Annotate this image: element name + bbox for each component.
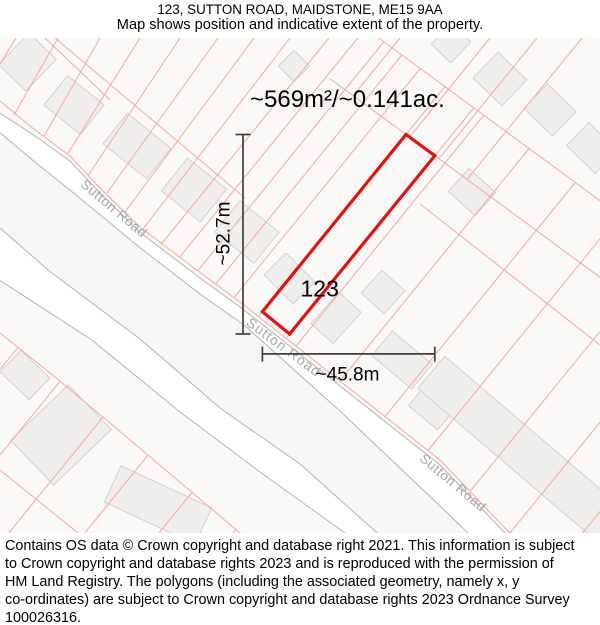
svg-text:~569m²/~0.141ac.: ~569m²/~0.141ac. <box>250 86 445 113</box>
svg-text:123: 123 <box>301 276 339 302</box>
svg-text:~52.7m: ~52.7m <box>214 202 235 266</box>
svg-text:~45.8m: ~45.8m <box>316 365 380 386</box>
